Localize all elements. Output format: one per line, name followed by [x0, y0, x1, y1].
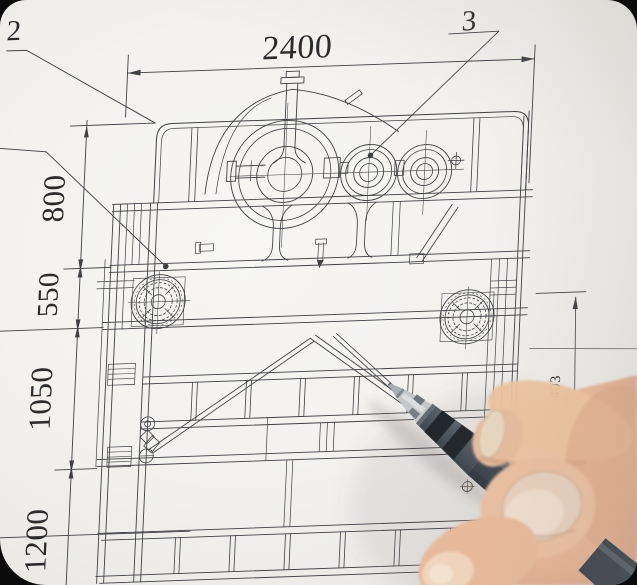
frame-left-wall — [91, 203, 158, 584]
callout-3: 3 — [368, 4, 501, 158]
dim-label-550: 550 — [32, 271, 66, 317]
dim-label-800: 800 — [35, 174, 72, 223]
callout-2-label: 2 — [6, 15, 22, 47]
breather-stub — [345, 90, 363, 105]
dim-label-2400: 2400 — [262, 28, 334, 67]
dim-label-1200: 1200 — [17, 508, 55, 573]
frame-top-section — [154, 111, 530, 203]
callout-2: 2 — [2, 10, 160, 128]
dim-label-1050: 1050 — [22, 366, 60, 431]
middle-fingernail — [429, 564, 453, 584]
bearing-left — [127, 271, 192, 335]
dimension-left-chain: 800 550 1050 1200 — [0, 116, 208, 585]
paper-sheet: 2400 3 2 — [0, 0, 637, 585]
bearing-target-mark — [448, 152, 465, 169]
dimension-top-width: 2400 — [122, 21, 536, 197]
gearbox — [201, 65, 468, 271]
photo-frame: 2400 3 2 — [0, 0, 637, 585]
